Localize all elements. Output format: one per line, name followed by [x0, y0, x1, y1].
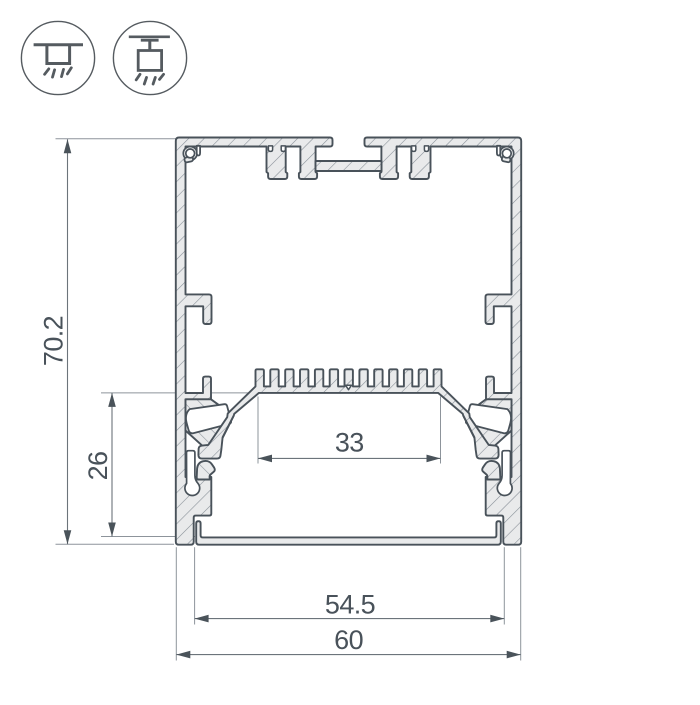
svg-text:70.2: 70.2 [39, 316, 69, 366]
svg-text:54.5: 54.5 [325, 589, 375, 619]
svg-text:33: 33 [335, 428, 364, 458]
svg-text:60: 60 [334, 625, 363, 655]
svg-text:26: 26 [83, 452, 113, 481]
